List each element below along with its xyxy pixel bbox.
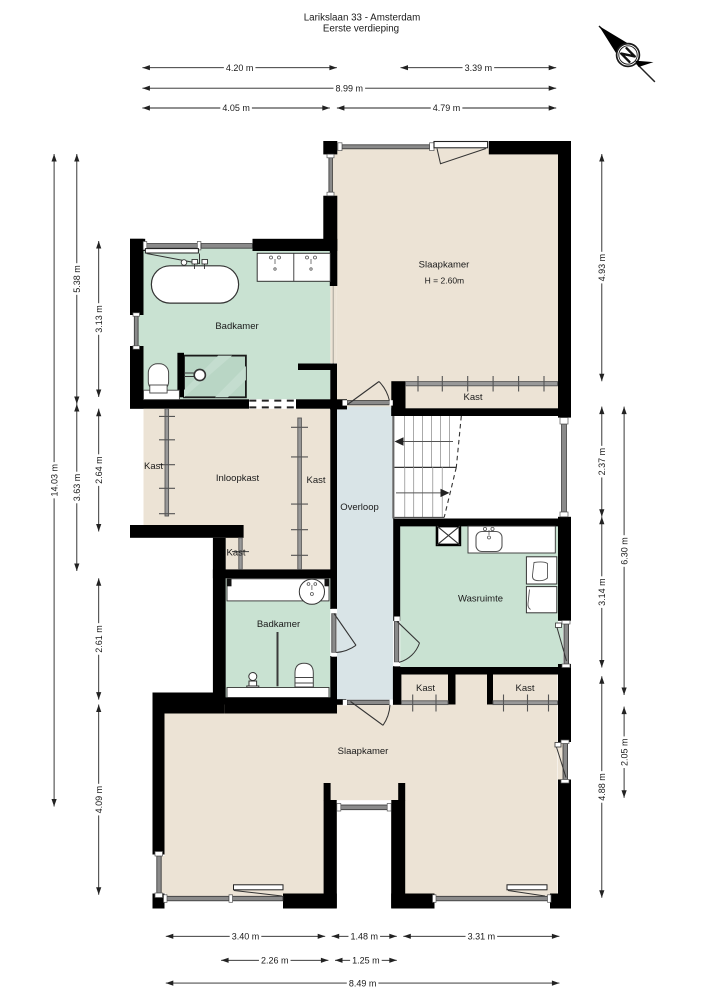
- svg-text:4.05 m: 4.05 m: [222, 103, 250, 113]
- svg-text:Kast: Kast: [226, 548, 245, 559]
- svg-text:Badkamer: Badkamer: [215, 321, 258, 332]
- svg-text:4.20 m: 4.20 m: [226, 63, 254, 73]
- svg-text:Kast: Kast: [144, 461, 163, 472]
- svg-text:Kast: Kast: [515, 683, 534, 694]
- svg-text:2.61 m: 2.61 m: [94, 625, 104, 653]
- svg-text:3.13 m: 3.13 m: [94, 305, 104, 333]
- svg-text:3.63 m: 3.63 m: [72, 474, 82, 502]
- svg-text:3.14 m: 3.14 m: [597, 578, 607, 606]
- svg-text:2.05 m: 2.05 m: [619, 738, 629, 766]
- svg-text:4.88 m: 4.88 m: [597, 773, 607, 801]
- svg-text:Eerste verdieping: Eerste verdieping: [323, 24, 399, 35]
- svg-text:Wasruimte: Wasruimte: [458, 594, 503, 605]
- svg-text:1.48 m: 1.48 m: [350, 932, 378, 942]
- svg-text:Slaapkamer: Slaapkamer: [338, 746, 389, 757]
- svg-text:6.30 m: 6.30 m: [619, 537, 629, 565]
- svg-text:H = 2.60m: H = 2.60m: [425, 275, 464, 285]
- svg-text:3.31 m: 3.31 m: [468, 932, 496, 942]
- svg-text:8.99 m: 8.99 m: [336, 83, 364, 93]
- svg-text:3.40 m: 3.40 m: [232, 932, 260, 942]
- svg-text:8.49 m: 8.49 m: [349, 978, 377, 988]
- svg-text:4.09 m: 4.09 m: [94, 786, 104, 814]
- svg-text:Kast: Kast: [306, 475, 325, 486]
- svg-text:4.93 m: 4.93 m: [597, 254, 607, 282]
- svg-text:2.37 m: 2.37 m: [597, 448, 607, 476]
- svg-text:Slaapkamer: Slaapkamer: [419, 259, 470, 270]
- svg-text:14.03 m: 14.03 m: [49, 464, 59, 497]
- svg-text:Larikslaan 33 - Amsterdam: Larikslaan 33 - Amsterdam: [304, 13, 421, 24]
- svg-text:Kast: Kast: [416, 683, 435, 694]
- svg-text:Kast: Kast: [463, 392, 482, 403]
- svg-text:Overloop: Overloop: [340, 502, 379, 513]
- svg-text:4.79 m: 4.79 m: [433, 103, 461, 113]
- svg-text:Badkamer: Badkamer: [257, 619, 300, 630]
- svg-text:5.38 m: 5.38 m: [72, 265, 82, 293]
- svg-text:2.26 m: 2.26 m: [261, 956, 289, 966]
- svg-text:1.25 m: 1.25 m: [352, 956, 380, 966]
- svg-text:2.64 m: 2.64 m: [94, 456, 104, 484]
- svg-text:3.39 m: 3.39 m: [465, 63, 493, 73]
- svg-text:Inloopkast: Inloopkast: [216, 473, 260, 484]
